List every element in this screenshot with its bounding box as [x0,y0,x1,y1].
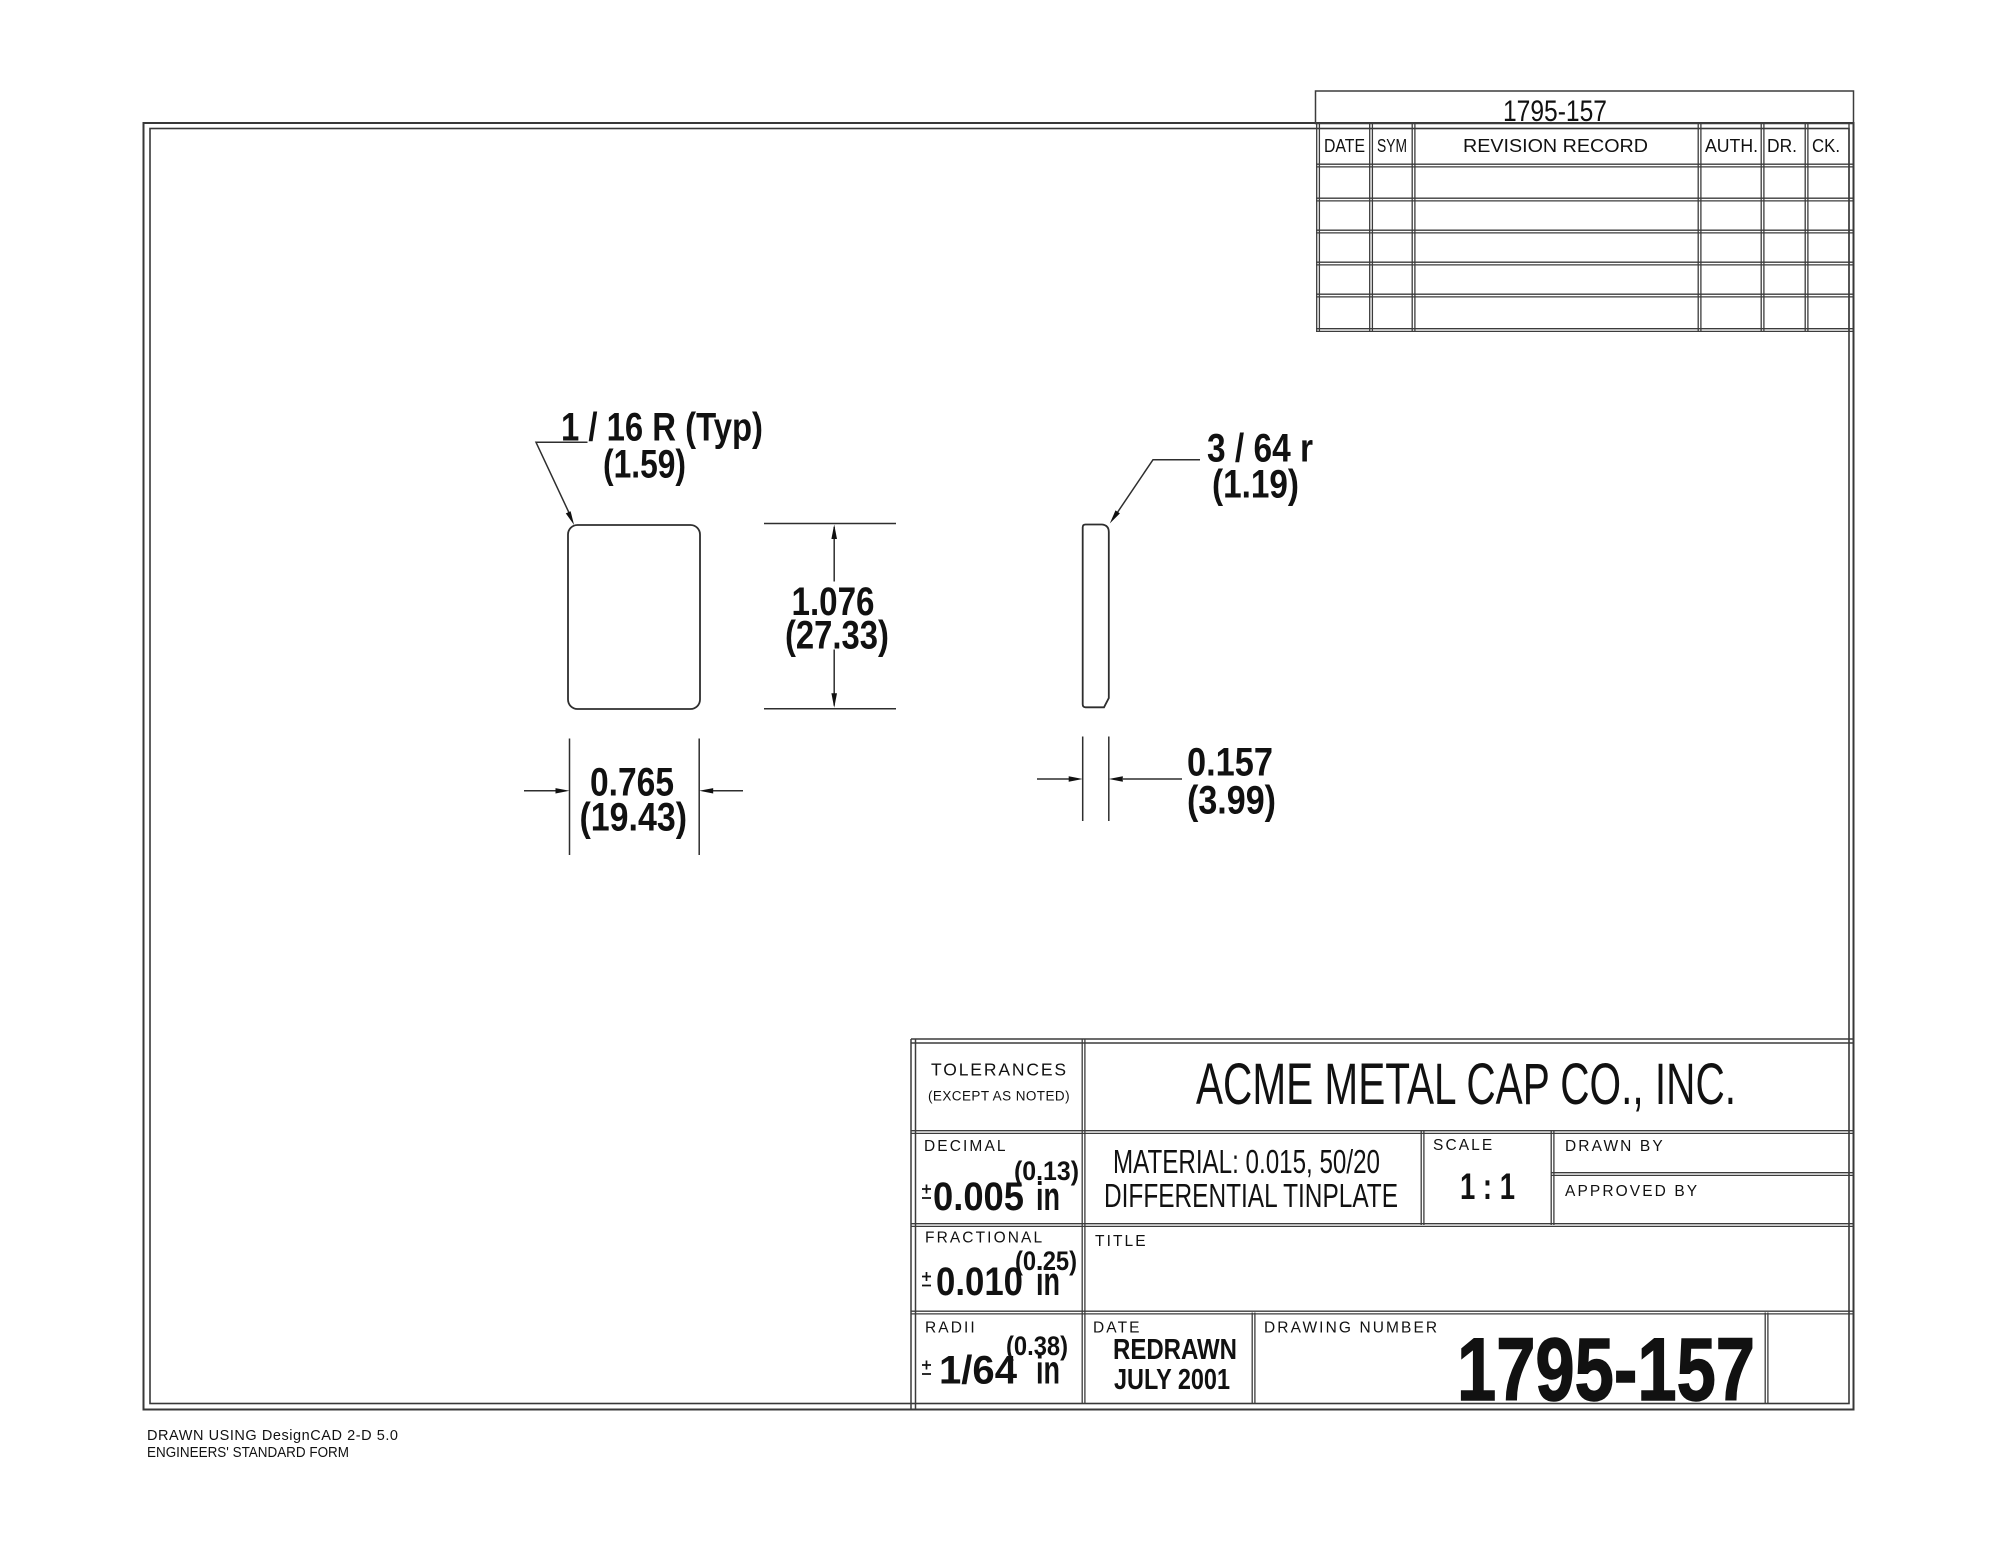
svg-text:DRAWING NUMBER: DRAWING NUMBER [1264,1320,1439,1337]
svg-text:RADII: RADII [925,1320,977,1337]
svg-text:(EXCEPT AS NOTED): (EXCEPT AS NOTED) [928,1089,1070,1104]
svg-text:DIFFERENTIAL TINPLATE: DIFFERENTIAL TINPLATE [1104,1178,1398,1215]
svg-text:CK.: CK. [1812,135,1840,156]
svg-text:in: in [1036,1349,1060,1393]
svg-text:TITLE: TITLE [1095,1233,1148,1250]
svg-text:(1.59): (1.59) [603,443,686,487]
svg-text:DATE: DATE [1324,135,1365,156]
svg-text:(27.33): (27.33) [785,614,889,658]
svg-text:0.005: 0.005 [933,1175,1024,1219]
svg-text:AUTH.: AUTH. [1705,135,1758,156]
svg-text:DR.: DR. [1767,135,1797,156]
svg-text:DRAWN BY: DRAWN BY [1565,1138,1665,1155]
svg-text:JULY 2001: JULY 2001 [1114,1364,1230,1396]
svg-text:APPROVED BY: APPROVED BY [1565,1183,1699,1200]
svg-text:DRAWN USING DesignCAD 2-D 5.0: DRAWN USING DesignCAD 2-D 5.0 [147,1428,398,1444]
svg-text:SYM: SYM [1377,135,1407,156]
svg-text:TOLERANCES: TOLERANCES [931,1060,1068,1080]
svg-text:(3.99): (3.99) [1187,779,1276,823]
svg-text:in: in [1036,1260,1060,1304]
svg-text:REDRAWN: REDRAWN [1113,1334,1237,1366]
svg-text:(19.43): (19.43) [580,796,688,840]
svg-text:REVISION RECORD: REVISION RECORD [1463,135,1648,156]
svg-text:FRACTIONAL: FRACTIONAL [925,1230,1044,1247]
svg-text:ACME METAL CAP CO., INC.: ACME METAL CAP CO., INC. [1196,1052,1736,1117]
svg-text:1/64: 1/64 [939,1349,1018,1393]
svg-text:MATERIAL: 0.015, 50/20: MATERIAL: 0.015, 50/20 [1113,1144,1380,1181]
svg-text:SCALE: SCALE [1433,1137,1494,1154]
svg-text:1795-157: 1795-157 [1503,95,1607,128]
svg-text:in: in [1036,1175,1060,1219]
svg-text:ENGINEERS' STANDARD FORM: ENGINEERS' STANDARD FORM [147,1445,349,1461]
svg-text:(1.19): (1.19) [1212,463,1299,507]
svg-text:DECIMAL: DECIMAL [924,1138,1008,1155]
svg-text:1795-157: 1795-157 [1457,1319,1755,1419]
svg-text:1 : 1: 1 : 1 [1460,1166,1515,1207]
svg-text:0.010: 0.010 [936,1260,1023,1304]
